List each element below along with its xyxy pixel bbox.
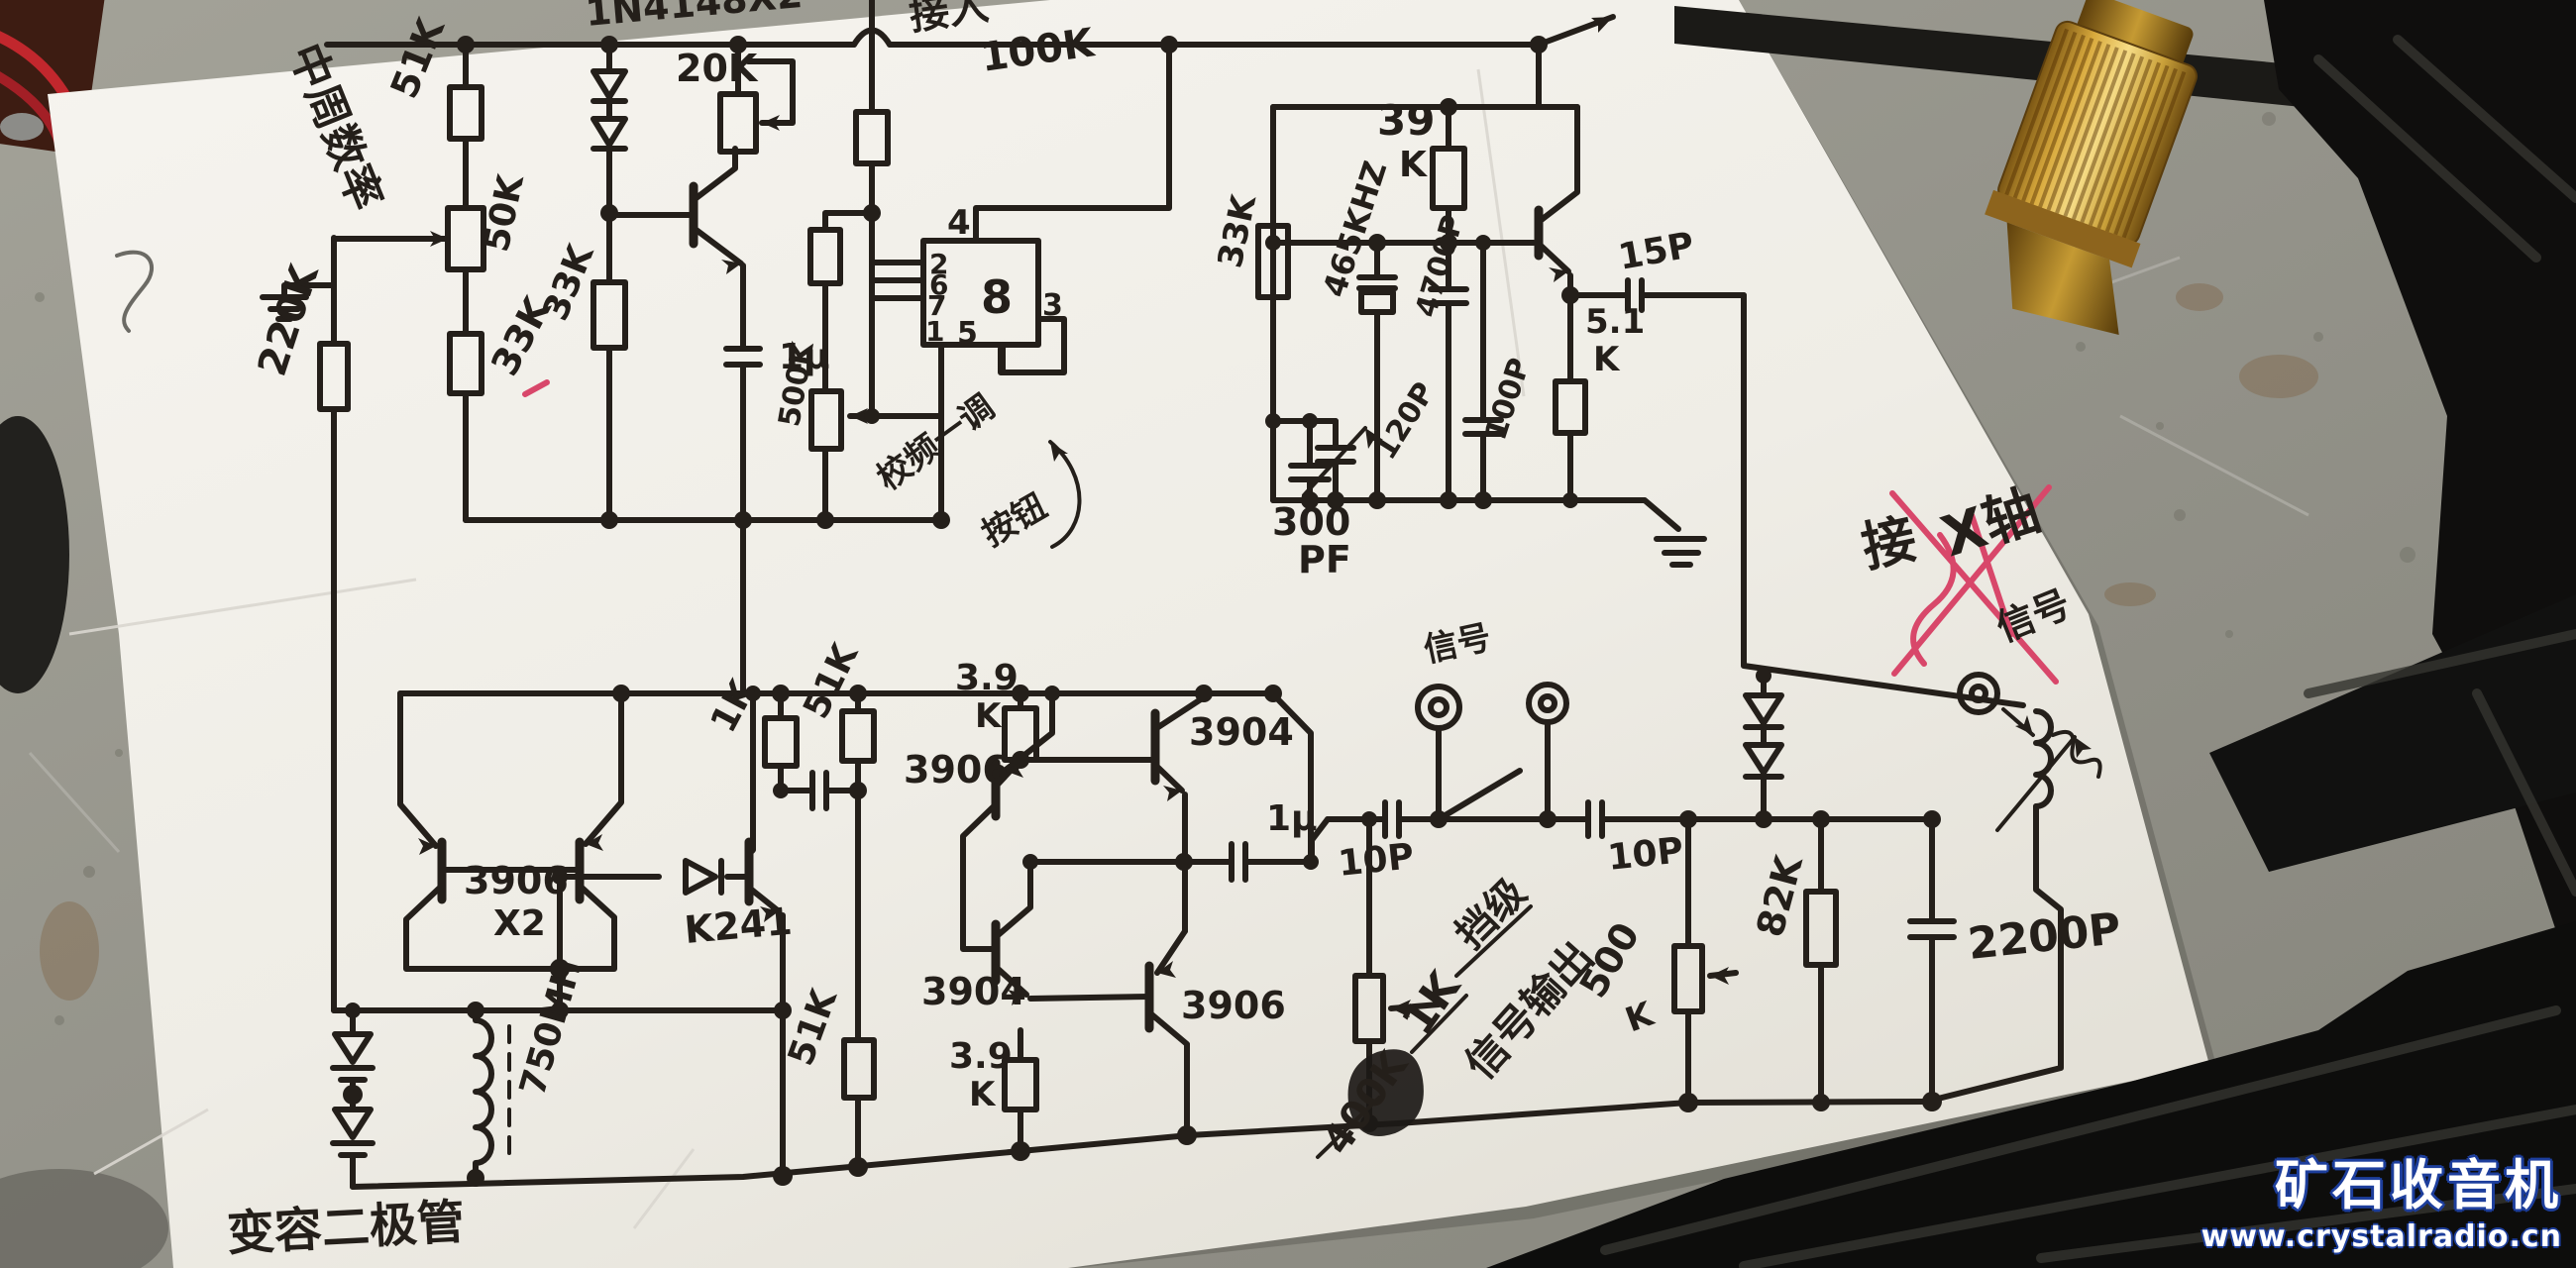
label-3906-a: 3906 xyxy=(904,748,1009,792)
schematic-photo: 中周数率 接入 1N4148X2 20K 100K 51K 50K 220K 3… xyxy=(0,0,2576,1268)
label-3906-x2: X2 xyxy=(493,903,546,944)
label-300pf-u: PF xyxy=(1298,538,1351,581)
label-3k9a-v: 3.9 xyxy=(955,658,1019,698)
label-20k: 20K xyxy=(676,47,759,90)
ic-pin-3: 3 xyxy=(1042,288,1063,323)
label-5k1-v: 5.1 xyxy=(1585,302,1645,342)
ic-pin-1: 1 xyxy=(925,315,944,348)
watermark-url: www.crystalradio.cn xyxy=(2201,1219,2562,1254)
label-3906-b: 3906 xyxy=(1181,984,1286,1027)
ic-pin-8: 8 xyxy=(981,270,1013,324)
watermark: 矿石收音机 www.crystalradio.cn xyxy=(2201,1141,2562,1254)
label-3904-a: 3904 xyxy=(1189,710,1294,754)
label-5k1-u: K xyxy=(1593,340,1621,379)
label-10p-b: 10P xyxy=(1606,830,1685,879)
label-3904-b: 3904 xyxy=(921,970,1026,1013)
label-3k9b-u: K xyxy=(969,1075,997,1114)
label-39k-u: K xyxy=(1399,145,1428,185)
ic-pin-4: 4 xyxy=(947,203,971,243)
label-3k9a-u: K xyxy=(975,696,1003,736)
photo-scene: 中周数率 接入 1N4148X2 20K 100K 51K 50K 220K 3… xyxy=(0,0,2576,1268)
ic-pin-5: 5 xyxy=(957,316,978,351)
label-3k9b-v: 3.9 xyxy=(949,1036,1013,1077)
label-1u-b: 1μ xyxy=(1266,798,1318,839)
label-39k-v: 39 xyxy=(1377,96,1435,145)
label-10p-a: 10P xyxy=(1337,836,1416,885)
watermark-brand: 矿石收音机 xyxy=(2201,1141,2562,1219)
label-3906-pair: 3906 xyxy=(464,859,569,902)
